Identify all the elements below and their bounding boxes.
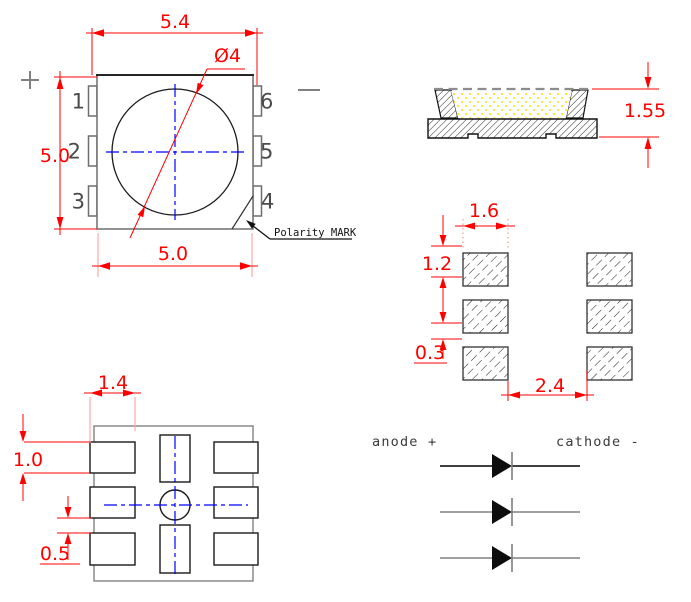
pin-1-lead bbox=[89, 86, 98, 116]
dim-pad-height-value: 1.2 bbox=[422, 253, 452, 275]
dim-bottom-pad-width-value: 1.4 bbox=[98, 372, 128, 394]
bottom-pad-left-2 bbox=[90, 487, 135, 518]
dim-pad-gap-value: 0.3 bbox=[415, 342, 445, 364]
pad-right-row3 bbox=[587, 347, 632, 380]
bottom-pad-right-3 bbox=[214, 533, 258, 565]
top-view: 1 2 3 6 5 4 5.4 5.0 bbox=[21, 11, 357, 277]
dim-package-height: 1.55 bbox=[592, 62, 666, 168]
bottom-pad-right-1 bbox=[214, 442, 258, 473]
dim-body-width-value: 5.0 bbox=[158, 243, 188, 265]
dim-overall-width-value: 5.4 bbox=[160, 11, 190, 33]
bottom-view: 1.4 1.0 0.5 bbox=[13, 372, 258, 581]
dim-column-gap-value: 2.4 bbox=[535, 375, 565, 397]
dim-bottom-pad-height-value: 1.0 bbox=[13, 449, 43, 471]
diode-symbol-3 bbox=[440, 544, 580, 572]
led-package-datasheet-drawing: 1 2 3 6 5 4 5.4 5.0 bbox=[0, 0, 691, 602]
pin-3-lead bbox=[89, 186, 98, 216]
pin-1-label: 1 bbox=[72, 90, 85, 114]
dim-package-height-value: 1.55 bbox=[624, 100, 666, 122]
dim-pad-width-value: 1.6 bbox=[469, 200, 499, 222]
anode-label: anode + bbox=[372, 434, 437, 450]
dim-pad-height: 1.2 bbox=[422, 215, 462, 312]
diode-symbol-1 bbox=[440, 452, 580, 480]
dim-body-width: 5.0 bbox=[92, 233, 258, 277]
bottom-pad-right-2 bbox=[214, 487, 258, 518]
pin-2-lead bbox=[89, 136, 98, 166]
dim-bottom-pad-height: 1.0 bbox=[13, 414, 90, 501]
bottom-pad-left-1 bbox=[90, 442, 135, 473]
pin-3-label: 3 bbox=[72, 190, 85, 214]
diode-triangle-icon bbox=[492, 546, 512, 570]
polarity-mark-callout: Polarity MARK bbox=[246, 220, 357, 239]
solder-pad-layout: 1.6 1.2 0.3 2.4 bbox=[414, 200, 632, 401]
polarity-diagram: anode + cathode - bbox=[372, 434, 640, 572]
side-view-base bbox=[428, 119, 597, 138]
dim-body-height-value: 5.0 bbox=[40, 145, 70, 167]
dim-column-gap: 2.4 bbox=[501, 370, 594, 401]
pin-5-label: 5 bbox=[260, 140, 273, 164]
diode-triangle-icon bbox=[492, 500, 512, 524]
dim-lens-diameter-value: Ø4 bbox=[214, 45, 241, 67]
plus-polarity-icon bbox=[21, 71, 39, 89]
dim-pad-gap: 0.3 bbox=[414, 312, 462, 364]
side-view: 1.55 bbox=[428, 62, 666, 168]
bottom-pad-left-3 bbox=[90, 533, 135, 565]
pad-left-row1 bbox=[463, 253, 508, 286]
solder-pads bbox=[463, 253, 632, 380]
pad-left-row2 bbox=[463, 300, 508, 333]
pin-4-label: 4 bbox=[261, 190, 274, 214]
drawing-svg: 1 2 3 6 5 4 5.4 5.0 bbox=[0, 0, 691, 602]
polarity-mark-label: Polarity MARK bbox=[274, 227, 357, 239]
diode-triangle-icon bbox=[492, 454, 512, 478]
pad-left-row3 bbox=[463, 347, 508, 380]
pin-6-label: 6 bbox=[260, 90, 273, 114]
diode-symbol-2 bbox=[440, 498, 580, 526]
cathode-label: cathode - bbox=[556, 434, 640, 450]
encapsulant-region bbox=[451, 91, 572, 118]
dim-bottom-pad-gap-value: 0.5 bbox=[40, 543, 70, 565]
pad-right-row2 bbox=[587, 300, 632, 333]
dim-pad-width: 1.6 bbox=[455, 200, 515, 250]
pad-right-row1 bbox=[587, 253, 632, 286]
dim-bottom-pad-gap: 0.5 bbox=[40, 496, 92, 565]
